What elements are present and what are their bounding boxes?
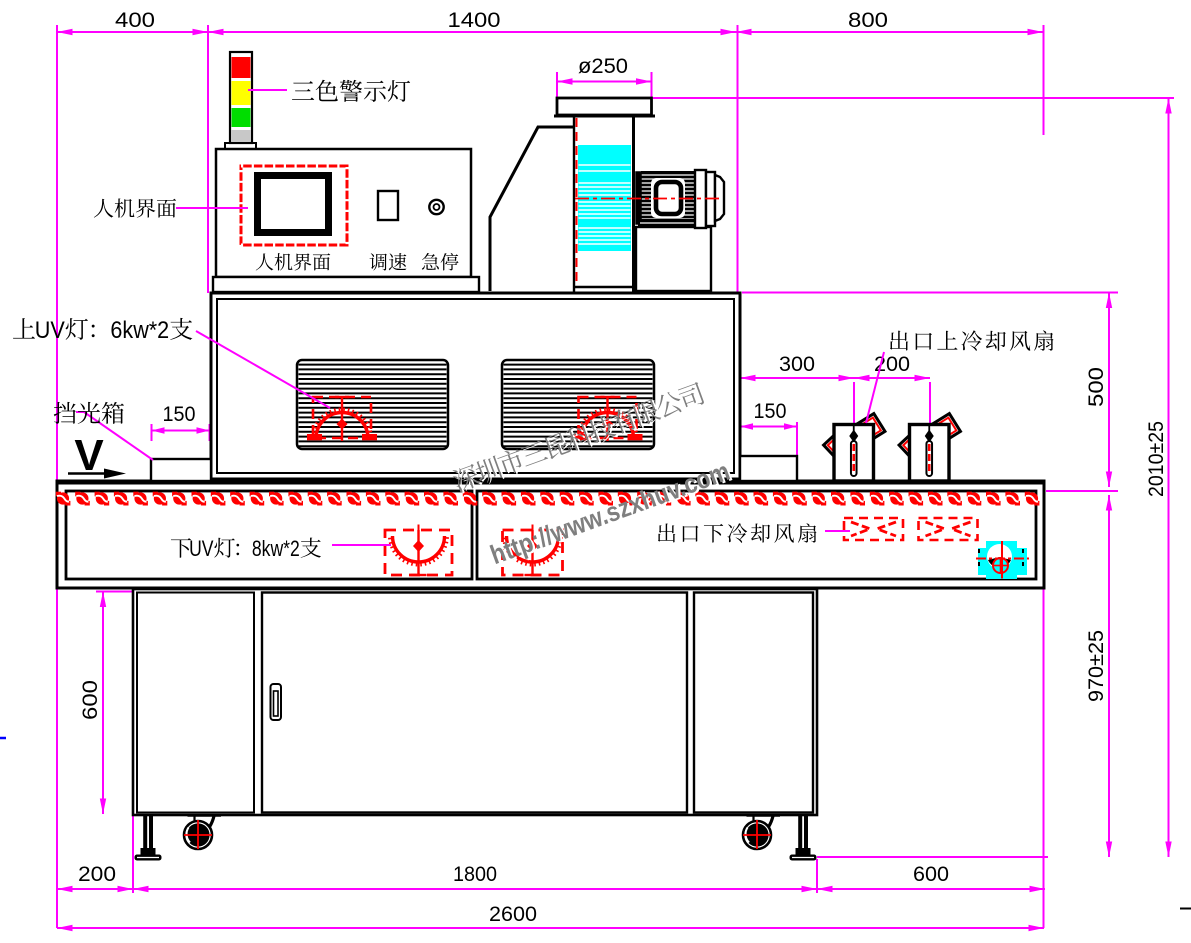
svg-text:UV: UV [35, 317, 65, 344]
svg-text:400: 400 [115, 9, 155, 32]
svg-text:200: 200 [78, 863, 116, 886]
svg-text:2010±25: 2010±25 [1145, 421, 1168, 497]
svg-text:800: 800 [848, 9, 888, 32]
svg-text:ø250: ø250 [578, 55, 628, 78]
svg-text:8kw*2: 8kw*2 [252, 536, 300, 561]
svg-text:150: 150 [754, 400, 787, 423]
svg-text:150: 150 [163, 403, 196, 426]
svg-text:1800: 1800 [453, 863, 497, 886]
svg-text:2600: 2600 [489, 903, 537, 926]
svg-text:1400: 1400 [448, 9, 501, 32]
svg-text:500: 500 [1085, 367, 1108, 407]
svg-text:600: 600 [79, 680, 102, 720]
svg-text:UV: UV [189, 536, 214, 561]
svg-text:6kw*2: 6kw*2 [110, 317, 169, 344]
svg-text:600: 600 [913, 863, 949, 886]
svg-text:300: 300 [779, 353, 815, 376]
svg-text:970±25: 970±25 [1085, 630, 1108, 702]
